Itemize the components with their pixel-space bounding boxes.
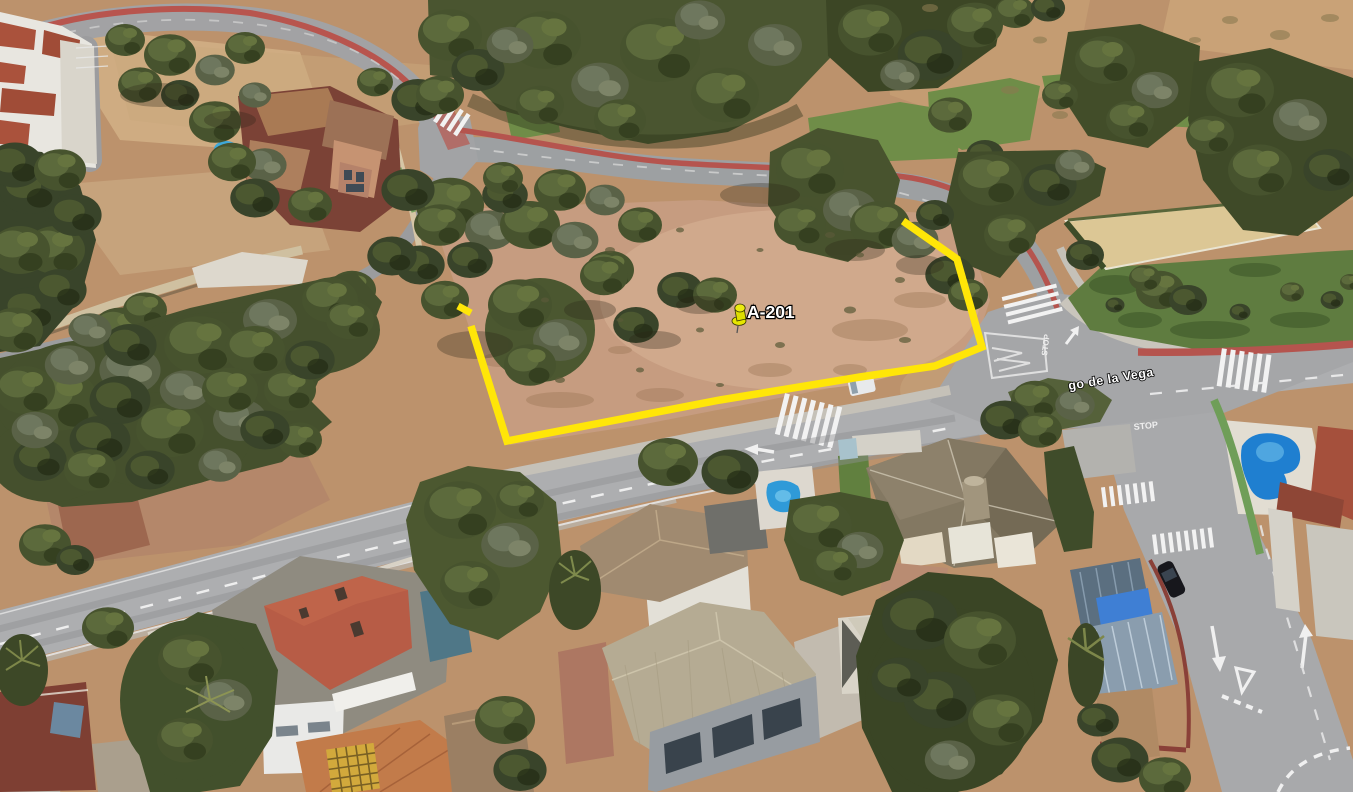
svg-text:A-201: A-201 bbox=[747, 302, 795, 322]
